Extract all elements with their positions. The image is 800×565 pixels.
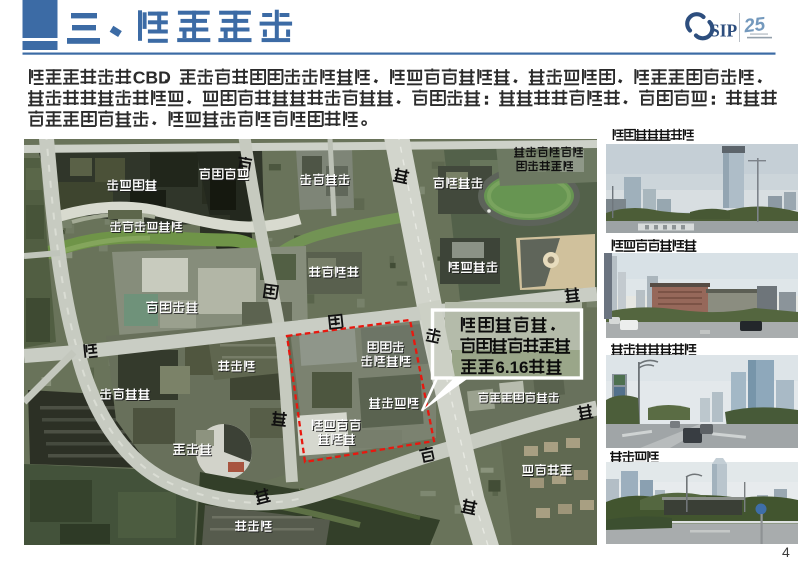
svg-text:4: 4 — [782, 544, 790, 560]
svg-text:6.16: 6.16 — [495, 358, 528, 377]
svg-text:CBD: CBD — [133, 68, 171, 88]
svg-text:SIP: SIP — [710, 21, 738, 41]
